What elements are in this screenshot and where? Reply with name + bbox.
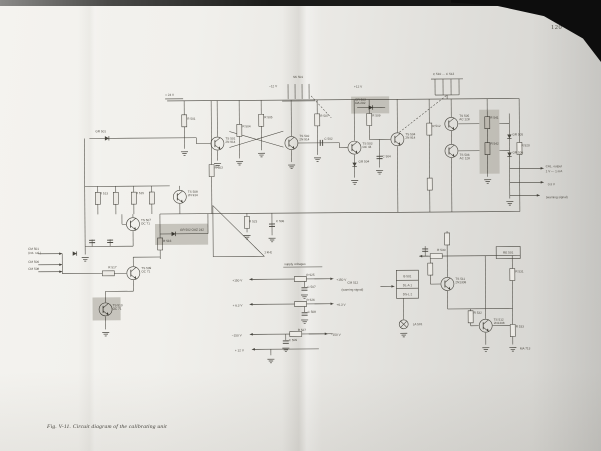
svg-text:TS 5012N 914: TS 5012N 914 xyxy=(225,136,235,143)
svg-text:CAL. output: CAL. output xyxy=(546,164,563,168)
svg-text:C 507: C 507 xyxy=(307,285,316,289)
svg-text:B 501: B 501 xyxy=(403,274,411,278)
svg-text:GR 501: GR 501 xyxy=(95,129,106,133)
svg-text:C 506: C 506 xyxy=(276,219,285,223)
svg-text:TS 506AC 128: TS 506AC 128 xyxy=(459,153,470,160)
svg-text:R 507: R 507 xyxy=(320,114,329,118)
svg-text:+ 6.3 V: + 6.3 V xyxy=(233,303,244,307)
svg-text:−150 V: −150 V xyxy=(232,333,243,337)
svg-text:R 527: R 527 xyxy=(298,328,307,332)
svg-text:R 515: R 515 xyxy=(136,191,145,195)
svg-text:+ 24 V: + 24 V xyxy=(165,93,175,97)
svg-text:+12 V: +12 V xyxy=(354,85,363,89)
svg-text:TS 509OC 71: TS 509OC 71 xyxy=(141,266,151,273)
figure-caption: Fig. V-11. Circuit diagram of the calibr… xyxy=(47,424,167,430)
svg-text:1 V — 1 mA: 1 V — 1 mA xyxy=(546,169,564,173)
svg-text:TS 5112N1308: TS 5112N1308 xyxy=(455,277,466,284)
svg-text:(warning signal): (warning signal) xyxy=(546,195,568,199)
svg-text:SK 501: SK 501 xyxy=(293,75,303,79)
svg-text:R 504: R 504 xyxy=(242,124,251,128)
svg-text:TS 507OC 71: TS 507OC 71 xyxy=(141,218,151,225)
svg-text:TS 5042N 914: TS 5042N 914 xyxy=(405,132,415,139)
svg-text:TS 5082N 914: TS 5082N 914 xyxy=(188,190,198,197)
svg-text:C 508: C 508 xyxy=(308,310,317,314)
svg-text:R 533: R 533 xyxy=(516,324,525,328)
svg-text:R 517: R 517 xyxy=(108,265,117,269)
svg-text:C 510 … C 513: C 510 … C 513 xyxy=(433,72,455,76)
svg-text:R 532: R 532 xyxy=(474,311,483,315)
svg-text:MA 713: MA 713 xyxy=(520,346,531,350)
svg-text:DS-L 2: DS-L 2 xyxy=(403,292,413,296)
svg-text:TS 5122N1308: TS 5122N1308 xyxy=(494,318,505,325)
svg-text:CM 508: CM 508 xyxy=(28,267,39,271)
circuit-schematic-container: + 24 VGR 501SK 501−12 V+12 VC 510 … C 51… xyxy=(0,0,601,451)
svg-text:C 504: C 504 xyxy=(383,154,392,158)
svg-text:R 513: R 513 xyxy=(100,191,109,195)
circuit-schematic: + 24 VGR 501SK 501−12 V+12 VC 510 … C 51… xyxy=(0,0,601,451)
svg-text:+150 V: +150 V xyxy=(336,278,347,282)
svg-text:(ext. cal.): (ext. cal.) xyxy=(28,251,41,255)
svg-text:1 kHz: 1 kHz xyxy=(264,250,272,254)
svg-text:R 523: R 523 xyxy=(249,219,258,223)
svg-text:(warning signal): (warning signal) xyxy=(341,288,363,292)
svg-text:R 503: R 503 xyxy=(215,166,224,170)
svg-text:+6.3 V: +6.3 V xyxy=(337,303,347,307)
svg-text:GR 505: GR 505 xyxy=(512,132,523,136)
svg-text:−150 V: −150 V xyxy=(331,333,342,337)
svg-text:R 530: R 530 xyxy=(437,248,446,252)
svg-text:+ 12 V: + 12 V xyxy=(235,348,245,352)
svg-text:+150 V: +150 V xyxy=(232,278,243,282)
svg-text:R 526: R 526 xyxy=(307,298,316,302)
svg-text:0.3 V: 0.3 V xyxy=(548,182,556,186)
svg-text:C 502: C 502 xyxy=(324,137,333,141)
svg-text:R 531: R 531 xyxy=(515,269,524,273)
svg-text:−12 V: −12 V xyxy=(269,84,278,88)
photo-of-book-page: + 24 VGR 501SK 501−12 V+12 VC 510 … C 51… xyxy=(0,0,601,451)
svg-text:R 509: R 509 xyxy=(372,113,381,117)
svg-text:R 501: R 501 xyxy=(187,117,196,121)
svg-text:GR 506: GR 506 xyxy=(512,150,523,154)
svg-text:C 509: C 509 xyxy=(289,338,298,342)
svg-text:TS 5022N 914: TS 5022N 914 xyxy=(299,134,309,141)
svg-text:R 505: R 505 xyxy=(264,115,273,119)
svg-text:R 512: R 512 xyxy=(432,124,441,128)
svg-text:R 520: R 520 xyxy=(521,143,530,147)
svg-text:R 525: R 525 xyxy=(306,273,315,277)
svg-text:LA 501: LA 501 xyxy=(413,322,423,326)
svg-text:RE 501: RE 501 xyxy=(503,251,514,255)
svg-text:CM 512: CM 512 xyxy=(347,281,358,285)
svg-text:TS 505AC 128: TS 505AC 128 xyxy=(459,114,470,121)
svg-text:TS 503OC 44: TS 503OC 44 xyxy=(362,141,372,148)
svg-text:DL-A 1: DL-A 1 xyxy=(403,283,413,287)
svg-text:GR 504: GR 504 xyxy=(359,160,370,164)
svg-text:supply voltages: supply voltages xyxy=(284,262,306,266)
svg-text:CM 506: CM 506 xyxy=(28,260,39,264)
